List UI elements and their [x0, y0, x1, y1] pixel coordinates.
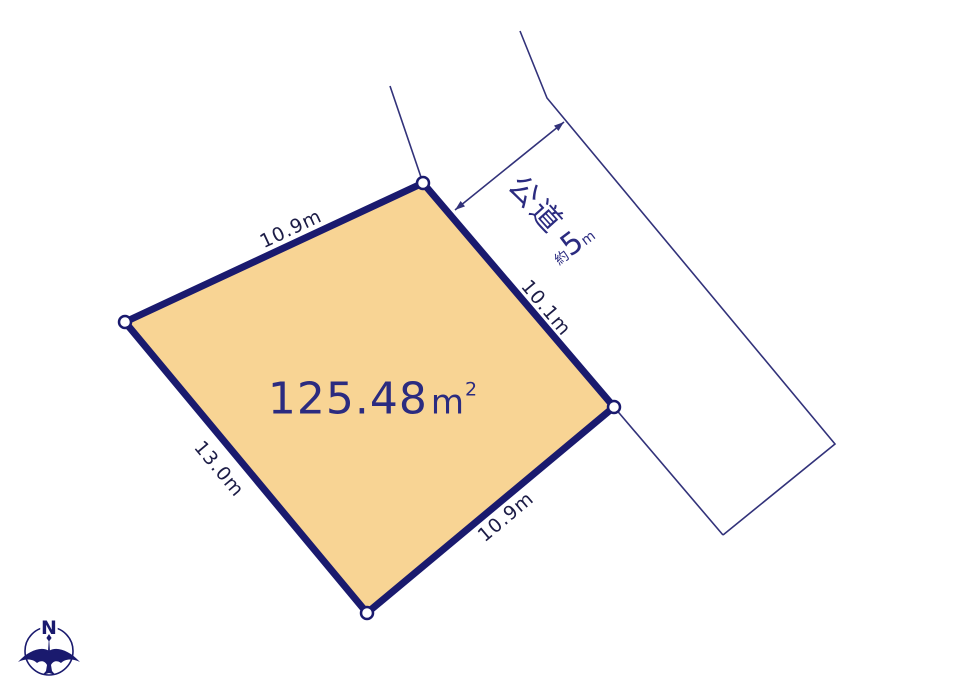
area-value: 125.48	[268, 374, 428, 425]
area-unit: m	[431, 383, 465, 423]
plot-vertex-marker-right	[608, 401, 620, 413]
north-compass-icon: N	[18, 617, 80, 675]
road-far-boundary-line	[520, 31, 835, 535]
plot-vertex-marker-bottom	[361, 607, 373, 619]
area-unit-exponent: 2	[465, 379, 478, 401]
site-plan-canvas: N 125.48m2 10.9m 13.0m 10.9m 10.1m 公道 約5…	[0, 0, 960, 680]
plot-vertex-marker-left	[119, 316, 131, 328]
road-near-boundary-line	[390, 86, 423, 183]
site-plan-drawing: N	[0, 0, 960, 680]
plot-boundary-extension-line	[614, 407, 723, 535]
plot-vertex-marker-top	[417, 177, 429, 189]
plot-area-label: 125.48m2	[268, 374, 478, 425]
